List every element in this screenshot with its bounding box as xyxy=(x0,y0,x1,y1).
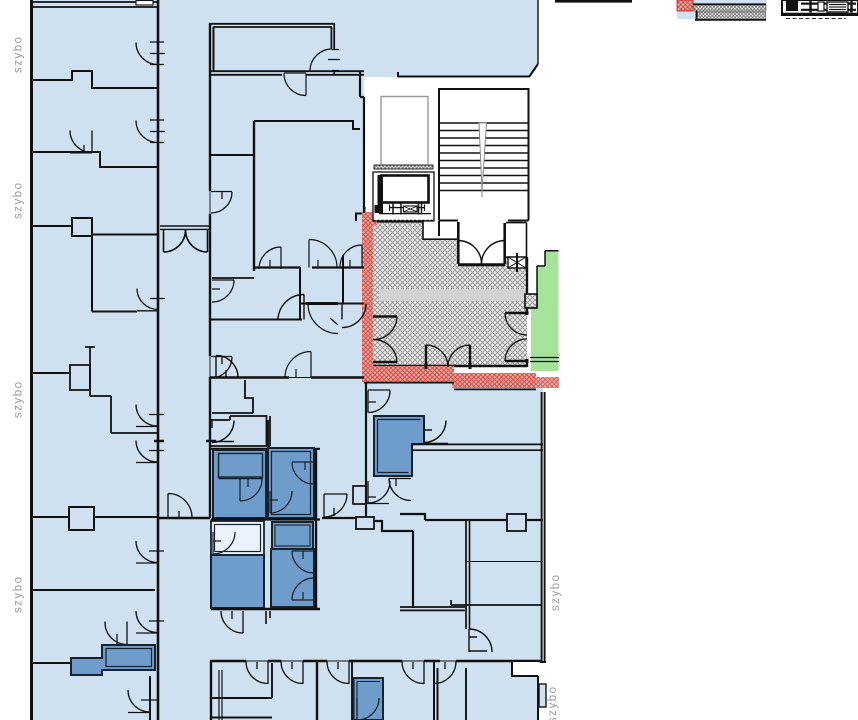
svg-text:szybo: szybo xyxy=(547,685,559,720)
svg-text:szybo: szybo xyxy=(13,575,25,613)
svg-text:szybo: szybo xyxy=(550,573,562,611)
svg-text:szybo: szybo xyxy=(13,181,25,219)
svg-text:szybo: szybo xyxy=(13,35,25,73)
svg-text:szybo: szybo xyxy=(13,380,25,418)
